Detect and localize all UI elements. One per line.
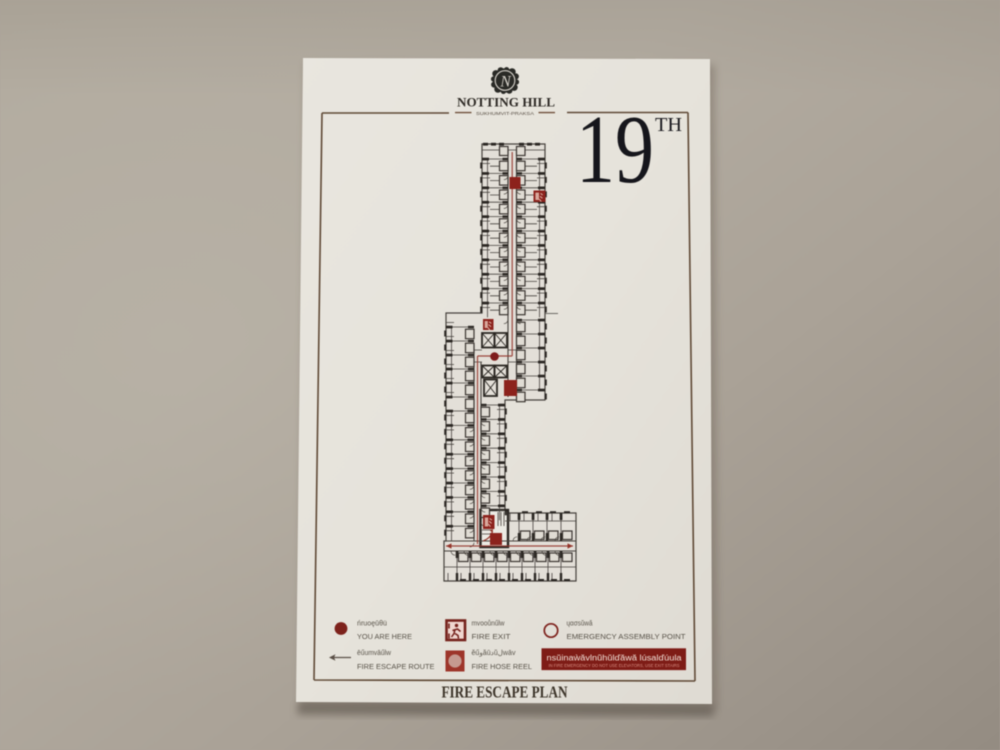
svg-text:mvooůnűlw: mvooůnűlw: [472, 620, 506, 628]
svg-text:19: 19: [576, 96, 654, 203]
svg-text:FIRE ESCAPE PLAN: FIRE ESCAPE PLAN: [442, 683, 568, 702]
svg-text:FIRE ESCAPE ROUTE: FIRE ESCAPE ROUTE: [357, 664, 435, 671]
svg-text:EMERGENCY ASSEMBLY POINT: EMERGENCY ASSEMBLY POINT: [567, 634, 687, 641]
svg-text:N: N: [499, 73, 512, 90]
svg-text:IN FIRE EMERGENCY DO NOT USE E: IN FIRE EMERGENCY DO NOT USE ELEVATORS, …: [549, 663, 680, 668]
svg-text:SUKHUMVIT-PRAKSA: SUKHUMVIT-PRAKSA: [476, 111, 535, 117]
svg-text:ńruoęūθü: ńruoęūθü: [357, 621, 387, 628]
svg-text:FIRE HOSE REEL: FIRE HOSE REEL: [472, 664, 533, 671]
svg-text:nsŭinaẁăvlnũhŭlďăwă lúsalďúula: nsŭinaẁăvlnũhŭlďăwă lúsalďúula: [547, 654, 683, 663]
svg-text:ēűumvāűlw: ēűumvāűlw: [357, 650, 392, 657]
svg-text:FIRE EXIT: FIRE EXIT: [472, 634, 512, 641]
svg-text:TH: TH: [655, 115, 682, 136]
svg-text:YOU ARE HERE: YOU ARE HERE: [357, 634, 412, 641]
svg-text:ųασsŭwă: ųασsŭwă: [567, 621, 593, 628]
svg-text:ĕűوăūدŭلwāv: ĕűوăūدŭلwāv: [472, 649, 517, 657]
svg-text:NOTTING HILL: NOTTING HILL: [457, 96, 555, 110]
